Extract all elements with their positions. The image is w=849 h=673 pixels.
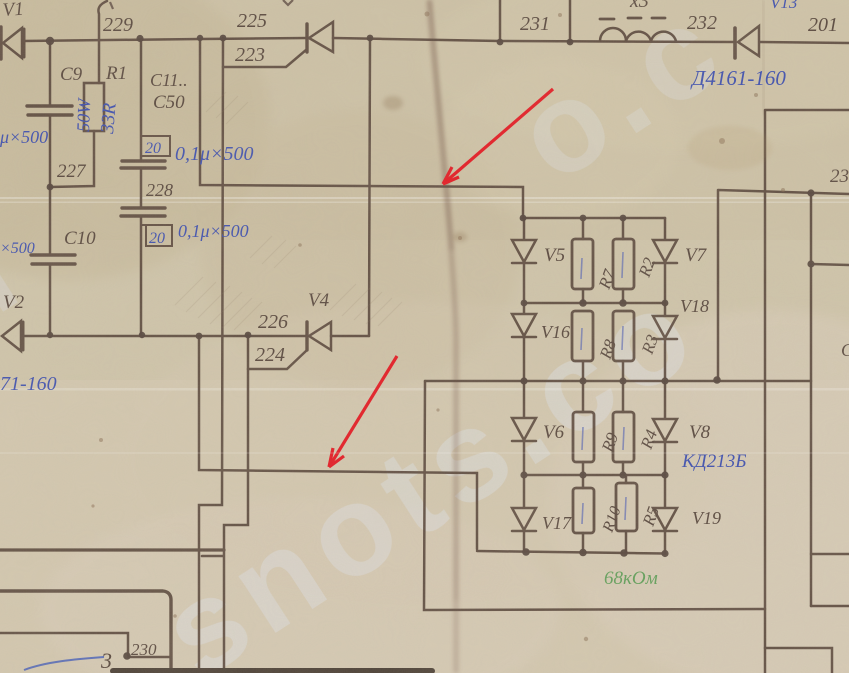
svg-text:3: 3 [100, 648, 112, 673]
svg-text:0,1μ×500: 0,1μ×500 [175, 143, 254, 165]
svg-text:0,1μ×500: 0,1μ×500 [178, 221, 249, 241]
svg-text:КД213Б: КД213Б [681, 451, 746, 472]
svg-text:71-160: 71-160 [0, 373, 57, 395]
svg-text:μ×500: μ×500 [0, 127, 48, 147]
svg-text:33R: 33R [97, 102, 121, 136]
svg-text:232: 232 [687, 12, 717, 34]
svg-text:20: 20 [149, 230, 165, 247]
svg-text:С: С [841, 340, 849, 360]
svg-text:×500: ×500 [0, 240, 35, 257]
svg-text:23: 23 [830, 166, 849, 187]
svg-text:V5: V5 [544, 245, 565, 266]
svg-text:V2: V2 [3, 292, 25, 313]
svg-text:223: 223 [235, 44, 265, 66]
svg-text:C10: C10 [64, 228, 96, 249]
svg-text:C9: C9 [60, 64, 83, 85]
svg-text:230: 230 [131, 640, 157, 659]
svg-text:Д4161-160: Д4161-160 [690, 66, 786, 90]
svg-text:224: 224 [255, 344, 285, 366]
svg-text:V7: V7 [685, 245, 708, 266]
svg-text:C50: C50 [153, 92, 185, 113]
svg-text:68кОм: 68кОм [604, 568, 658, 589]
svg-text:V6: V6 [543, 422, 565, 443]
svg-text:50W: 50W [73, 96, 94, 132]
svg-text:V16: V16 [541, 322, 570, 342]
svg-text:225: 225 [237, 10, 267, 32]
svg-text:V19: V19 [692, 508, 721, 528]
svg-text:229: 229 [103, 14, 133, 36]
svg-text:V18: V18 [680, 296, 709, 316]
svg-text:R1: R1 [105, 63, 127, 84]
svg-text:C11..: C11.. [150, 70, 188, 90]
svg-text:V17: V17 [542, 513, 572, 533]
svg-text:V8: V8 [689, 422, 711, 443]
svg-text:227: 227 [57, 161, 87, 182]
svg-text:201: 201 [808, 14, 838, 36]
svg-text:20: 20 [145, 140, 161, 157]
svg-text:х3: х3 [629, 0, 649, 12]
svg-text:226: 226 [258, 311, 288, 333]
svg-text:228: 228 [146, 180, 173, 200]
svg-text:231: 231 [520, 13, 550, 35]
svg-text:V4: V4 [308, 290, 330, 311]
svg-text:V13: V13 [770, 0, 797, 12]
svg-text:V1: V1 [2, 0, 25, 21]
